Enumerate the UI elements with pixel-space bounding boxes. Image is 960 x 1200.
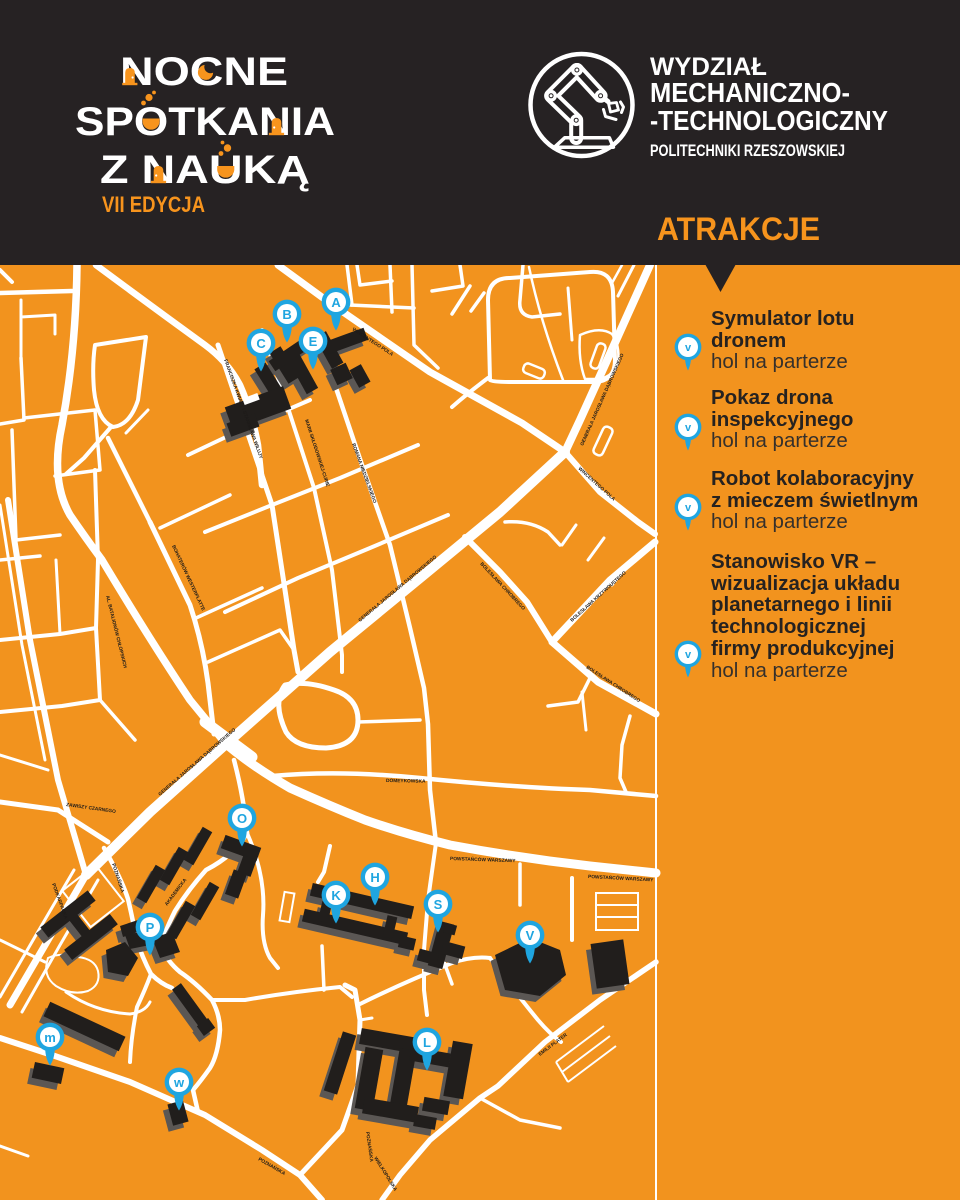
svg-text:ATRAKCJE: ATRAKCJE [657, 211, 820, 247]
svg-text:m: m [44, 1030, 56, 1045]
svg-text:v: v [685, 502, 692, 514]
svg-text:SPOTKANIA: SPOTKANIA [75, 100, 335, 144]
svg-text:MECHANICZNO-: MECHANICZNO- [650, 77, 850, 108]
svg-text:L: L [423, 1035, 431, 1050]
svg-text:B: B [282, 307, 291, 322]
svg-text:K: K [331, 888, 341, 903]
svg-text:E: E [309, 334, 318, 349]
svg-text:v: v [685, 422, 692, 434]
svg-text:POLITECHNIKI RZESZOWSKIEJ: POLITECHNIKI RZESZOWSKIEJ [650, 141, 845, 160]
svg-text:DOMEYKOWSKA: DOMEYKOWSKA [386, 778, 426, 785]
svg-text:S: S [434, 897, 443, 912]
svg-text:v: v [685, 649, 692, 661]
svg-text:-TECHNOLOGICZNY: -TECHNOLOGICZNY [650, 105, 888, 136]
svg-text:V: V [526, 928, 535, 943]
svg-text:w: w [173, 1075, 185, 1090]
svg-text:O: O [237, 811, 247, 826]
svg-text:v: v [685, 342, 692, 354]
svg-text:Z NAUKĄ: Z NAUKĄ [100, 148, 310, 192]
svg-text:H: H [370, 870, 379, 885]
svg-text:C: C [256, 336, 266, 351]
svg-text:VII EDYCJA: VII EDYCJA [102, 192, 205, 217]
svg-text:P: P [146, 920, 155, 935]
